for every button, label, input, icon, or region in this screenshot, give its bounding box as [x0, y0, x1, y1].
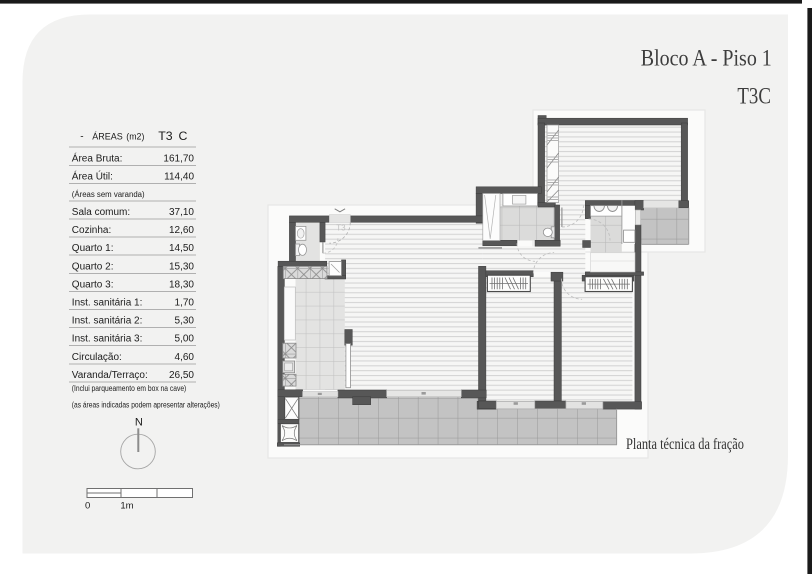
svg-text:37,10: 37,10 — [169, 207, 194, 218]
svg-text:(as áreas indicadas podem apre: (as áreas indicadas podem apresentar alt… — [72, 401, 220, 410]
svg-text:Circulação:: Circulação: — [72, 352, 122, 363]
svg-text:Área Bruta:: Área Bruta: — [72, 151, 123, 164]
svg-text:(Inclui parqueamento em box na: (Inclui parqueamento em box na cave) — [72, 384, 187, 393]
svg-text:Quarto 2:: Quarto 2: — [72, 261, 114, 272]
svg-text:15,30: 15,30 — [169, 261, 194, 272]
svg-text:Inst. sanitária 1:: Inst. sanitária 1: — [72, 298, 143, 309]
svg-text:(Áreas sem varanda): (Áreas sem varanda) — [72, 190, 145, 199]
svg-text:0: 0 — [85, 500, 90, 511]
svg-text:18,30: 18,30 — [169, 279, 194, 290]
svg-text:Quarto 3:: Quarto 3: — [72, 279, 114, 290]
svg-text:1m: 1m — [120, 500, 133, 511]
svg-text:T3C: T3C — [737, 84, 771, 109]
svg-text:Sala comum:: Sala comum: — [72, 207, 130, 218]
svg-text:Área Útil:: Área Útil: — [72, 169, 113, 182]
svg-text:5,00: 5,00 — [175, 334, 195, 345]
svg-text:Quarto 1:: Quarto 1: — [72, 243, 114, 254]
svg-text:(m2): (m2) — [126, 132, 144, 142]
svg-text:Inst. sanitária 2:: Inst. sanitária 2: — [72, 316, 143, 327]
svg-text:161,70: 161,70 — [163, 153, 194, 164]
svg-text:12,60: 12,60 — [169, 225, 194, 236]
svg-text:-: - — [80, 132, 83, 143]
svg-text:Bloco A - Piso 1: Bloco A - Piso 1 — [641, 46, 772, 71]
svg-text:14,50: 14,50 — [169, 243, 194, 254]
svg-text:ÁREAS: ÁREAS — [92, 132, 123, 143]
svg-text:26,50: 26,50 — [169, 370, 194, 381]
svg-text:4,60: 4,60 — [175, 352, 195, 363]
svg-text:114,40: 114,40 — [164, 171, 194, 182]
svg-text:N: N — [135, 417, 143, 429]
svg-text:C: C — [179, 129, 188, 143]
svg-text:5,30: 5,30 — [175, 316, 195, 327]
svg-text:1,70: 1,70 — [175, 298, 195, 309]
svg-text:Inst. sanitária 3:: Inst. sanitária 3: — [72, 334, 143, 345]
svg-text:Varanda/Terraço:: Varanda/Terraço: — [72, 370, 148, 381]
svg-text:Cozinha:: Cozinha: — [72, 225, 111, 236]
svg-text:T3: T3 — [158, 129, 173, 143]
svg-text:Planta técnica da fração: Planta técnica da fração — [626, 436, 744, 453]
svg-text:T3: T3 — [336, 224, 346, 233]
